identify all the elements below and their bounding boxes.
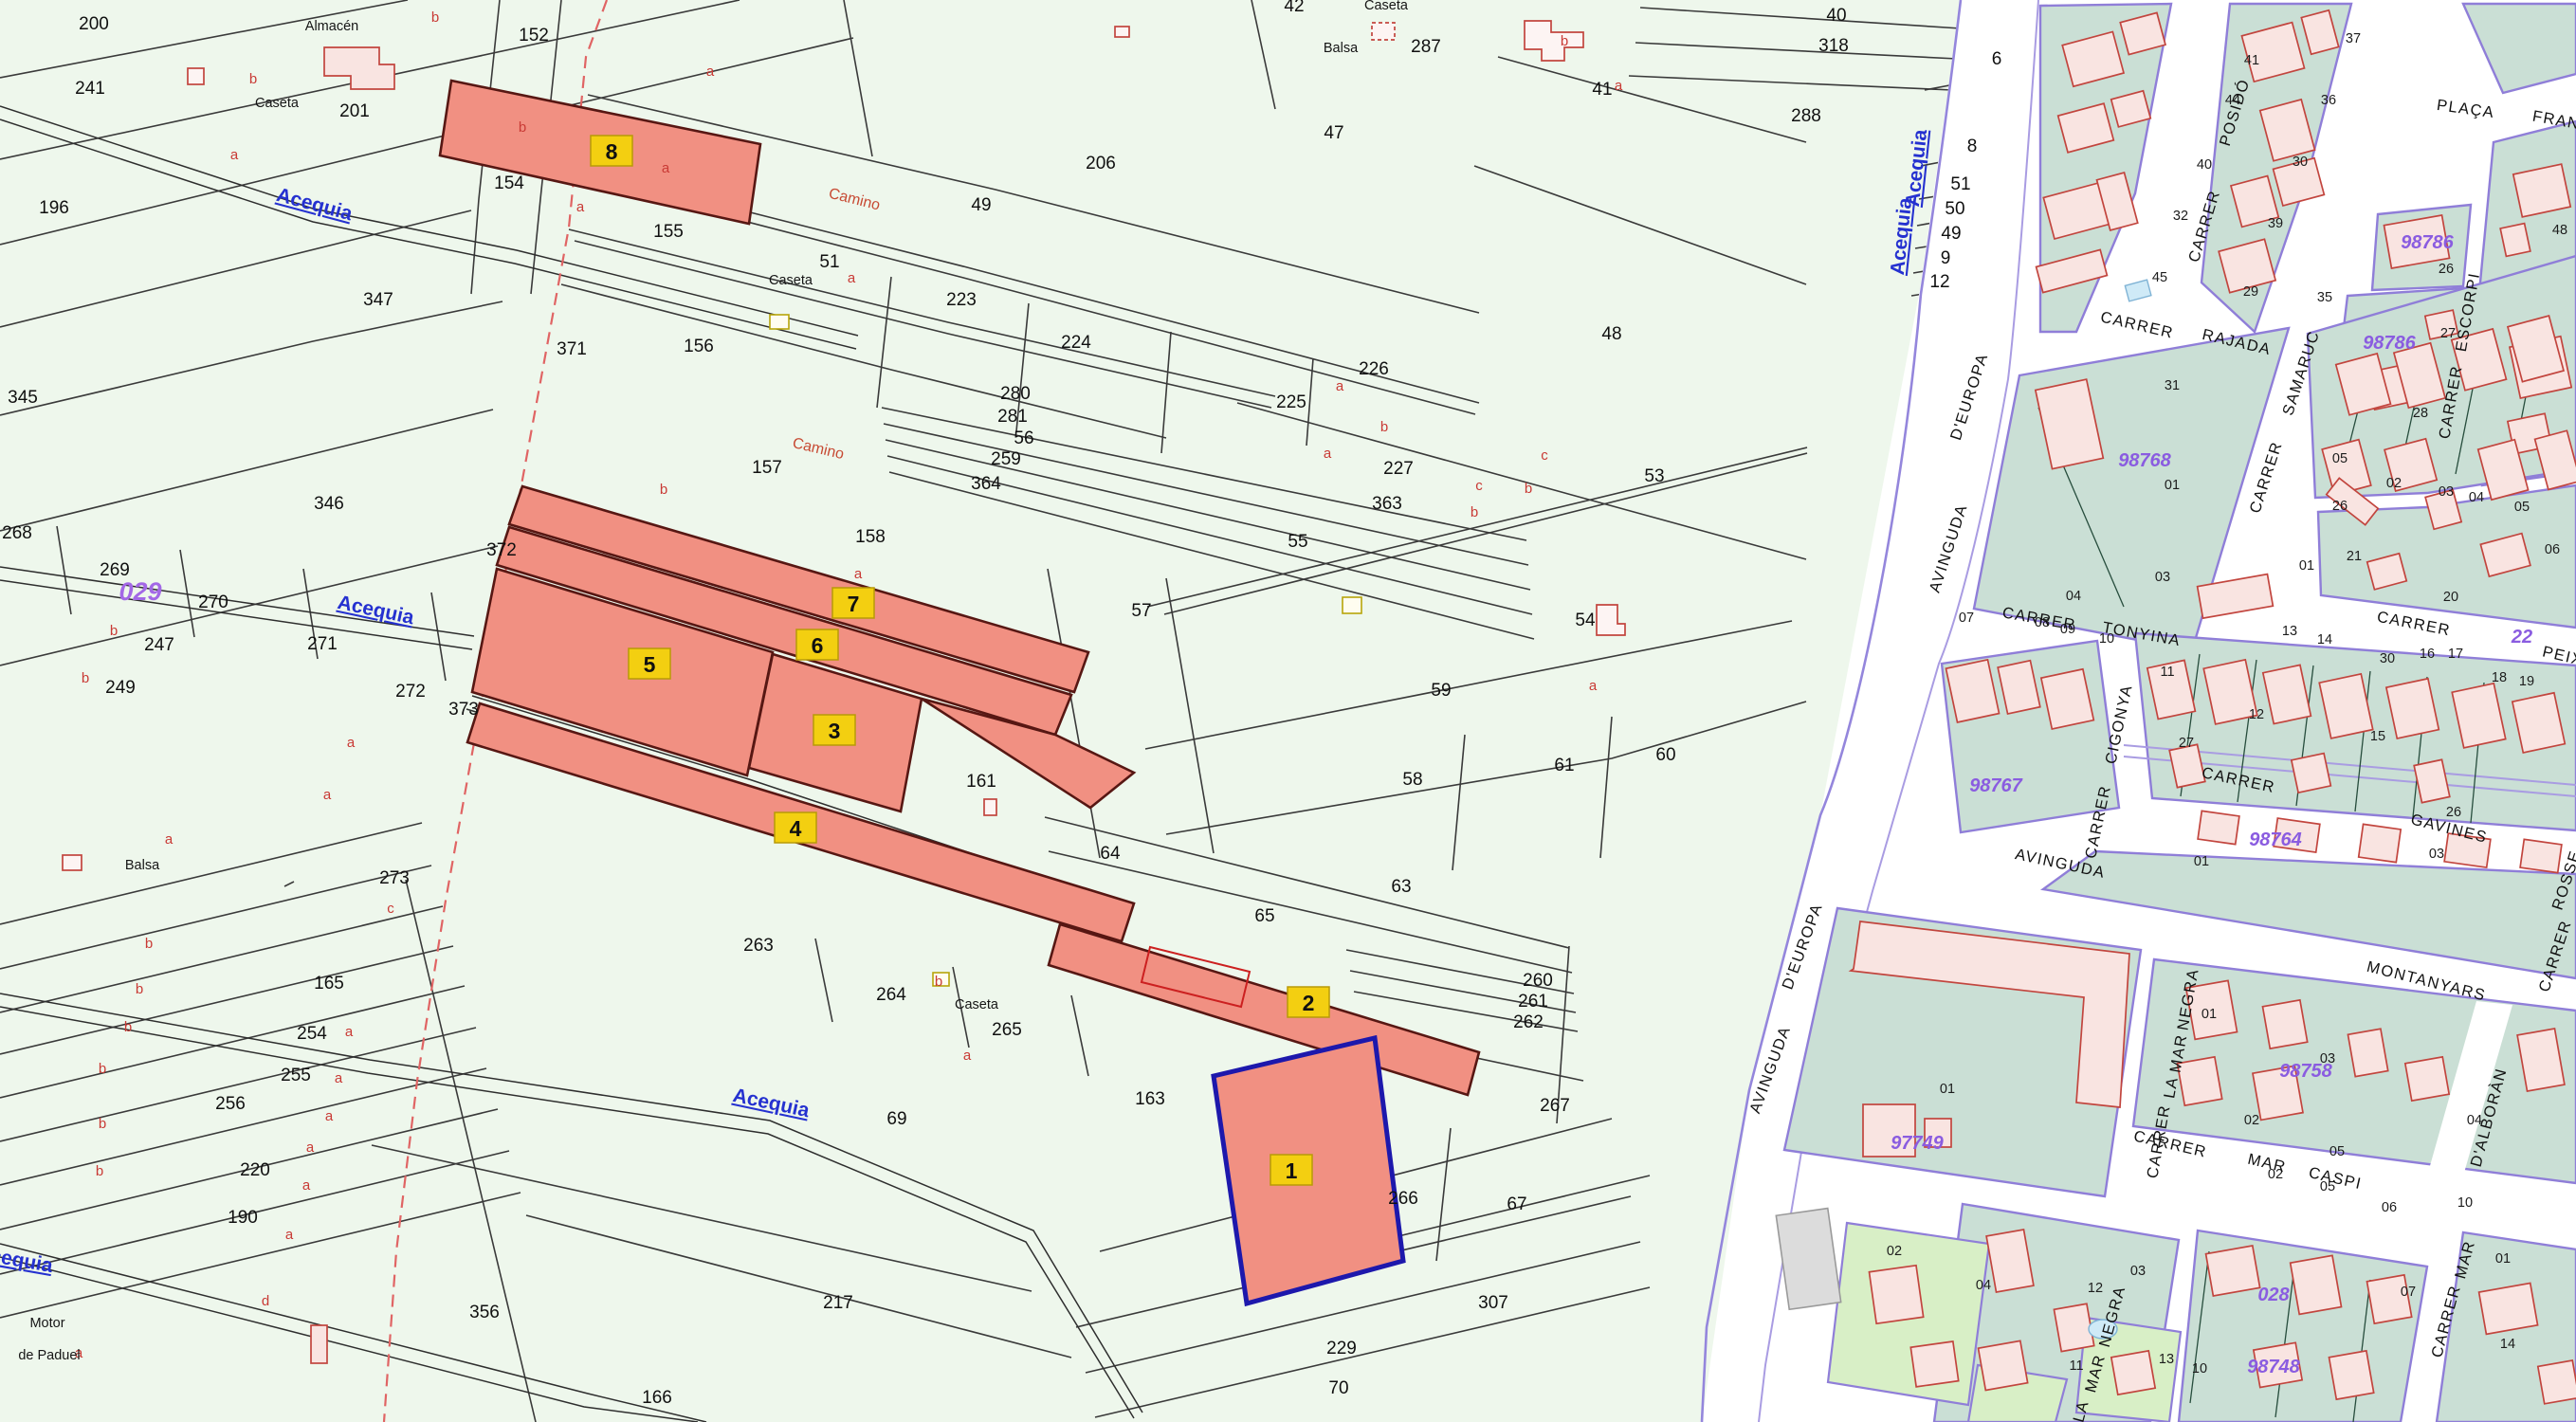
map-label: 02 [1887,1244,1902,1259]
map-label: 229 [1326,1339,1357,1358]
map-label: 356 [469,1303,500,1322]
map-label: 03 [2130,1264,2146,1279]
map-label: 10 [2457,1195,2473,1211]
map-label: b [1471,504,1478,520]
map-label: 6 [1992,49,2002,69]
map-label: 163 [1135,1089,1165,1109]
map-label: 318 [1818,36,1849,56]
map-label: 261 [1518,992,1548,1012]
map-label: 03 [2439,484,2454,500]
map-label: 373 [448,700,479,720]
map-label: 59 [1431,681,1451,701]
map-label: 14 [2500,1337,2515,1352]
map-label: 200 [79,14,109,34]
map-label: 98786 [2363,333,2416,354]
map-label: a [662,160,670,176]
map-label: 9 [1941,248,1951,268]
map-label: a [302,1177,311,1194]
map-label: 61 [1554,756,1574,775]
map-label: 31 [2165,378,2180,393]
map-label: 48 [1601,324,1621,344]
map-label: 263 [743,936,774,956]
map-label: 345 [8,388,38,408]
map-label: 372 [486,540,517,560]
map-label: b [249,71,257,87]
map-label: d [262,1293,269,1309]
map-label: 36 [2321,93,2336,108]
map-label: 07 [2401,1285,2416,1300]
map-label: b [431,9,439,26]
map-label: 259 [991,449,1021,469]
map-label: a [848,270,856,286]
map-label: 18 [2492,670,2507,685]
map-label: 30 [2293,155,2308,170]
map-label: 49 [1941,224,1961,244]
map-label: b [1561,33,1568,49]
map-label: 226 [1359,359,1389,379]
map-label: 225 [1276,392,1306,412]
map-label: 223 [946,290,977,310]
map-label: 158 [855,527,886,547]
map-label: b [1525,481,1532,497]
svg-text:2: 2 [1303,991,1315,1015]
map-label: a [306,1139,315,1156]
map-label: a [963,1048,972,1064]
svg-text:8: 8 [606,139,618,164]
map-label: 98764 [2249,829,2302,850]
highlight-label-7[interactable]: 7 [832,588,874,618]
map-label: 17 [2448,647,2463,662]
map-label: 41 [1592,80,1612,100]
map-label: b [935,974,942,990]
map-label: c [387,901,394,917]
map-label: 227 [1383,459,1414,479]
map-label: 12 [2249,707,2264,722]
svg-text:1: 1 [1286,1158,1298,1183]
map-label: 54 [1575,611,1596,630]
map-label: Balsa [1324,41,1359,56]
map-label: 21 [2347,549,2362,564]
map-label: 48 [2552,223,2567,238]
map-label: 50 [1945,199,1964,219]
map-label: 01 [2299,558,2314,574]
map-label: 270 [198,592,228,612]
map-label: 37 [2346,31,2361,46]
map-label: 307 [1478,1293,1508,1313]
map-label: a [576,199,585,215]
map-label: a [165,831,174,848]
map-label: 8 [1967,137,1978,156]
map-label: 01 [2165,478,2180,493]
map-label: 03 [2429,847,2444,862]
map-label: 56 [1014,428,1033,448]
map-label: 60 [1655,745,1675,765]
svg-text:4: 4 [790,816,802,841]
map-label: 12 [1929,272,1949,292]
map-label: 63 [1391,877,1411,897]
cadastral-map-canvas[interactable]: 2002412011521541551963473711563453463722… [0,0,2576,1422]
map-label: 288 [1791,106,1821,126]
map-label: 190 [228,1208,258,1228]
highlight-label-6[interactable]: 6 [796,629,838,660]
map-label: 47 [1324,123,1343,143]
map-label: 53 [1644,466,1664,486]
map-label: 346 [314,494,344,514]
map-label: 265 [992,1020,1022,1040]
map-label: 41 [2244,53,2259,68]
highlight-label-3[interactable]: 3 [813,715,855,745]
map-label: c [1541,447,1548,464]
map-label: b [1380,419,1388,435]
map-label: 26 [2439,262,2454,277]
map-label: 15 [2370,729,2385,744]
map-label: Caseta [769,273,813,288]
map-label: b [124,1019,132,1035]
map-label: 10 [2192,1361,2207,1376]
highlight-label-5[interactable]: 5 [629,648,670,679]
map-label: 64 [1100,844,1121,864]
map-label: b [136,981,143,997]
map-label: 40 [2197,157,2212,173]
highlight-label-1[interactable]: 1 [1270,1155,1312,1185]
map-label: 67 [1507,1194,1526,1214]
map-label: 247 [144,635,174,655]
map-label: 281 [997,407,1028,427]
map-label: 69 [886,1109,906,1129]
map-label: 26 [2332,499,2348,514]
map-label: 45 [2152,270,2167,285]
map-label: 70 [1328,1378,1348,1398]
map-label: 273 [379,868,410,888]
map-label: 206 [1086,154,1116,173]
svg-text:3: 3 [829,719,841,743]
map-label: 57 [1131,601,1151,621]
map-label: 13 [2159,1352,2174,1367]
svg-text:6: 6 [812,633,824,658]
map-label: a [1589,678,1598,694]
map-label: 157 [752,458,782,478]
map-label: 29 [2243,284,2258,300]
map-label: 39 [2268,216,2283,231]
map-label: 05 [2329,1144,2345,1159]
map-label: a [1615,78,1623,94]
map-label: 16 [2420,647,2435,662]
map-label: a [345,1024,354,1040]
map-label: b [99,1061,106,1077]
map-label: 01 [2201,1007,2217,1022]
map-label: 19 [2519,674,2534,689]
map-label: de Paduel [18,1348,80,1363]
map-label: 280 [1000,384,1031,404]
map-label: a [1324,446,1332,462]
svg-text:7: 7 [848,592,860,616]
map-label: 028 [2257,1285,2290,1305]
map-label: 161 [966,772,996,792]
map-label: 267 [1540,1096,1570,1116]
map-label: 241 [75,79,105,99]
map-label: 02 [2386,476,2402,491]
map-label: 07 [1959,611,1974,626]
map-label: 363 [1372,494,1402,514]
map-label: 98758 [2279,1061,2332,1082]
map-label: a [1336,378,1344,394]
map-label: 224 [1061,333,1091,353]
map-label: 262 [1513,1012,1544,1032]
map-label: 98767 [1969,775,2022,796]
map-label: 98748 [2247,1357,2300,1377]
map-label: 28 [2413,406,2428,421]
map-label: 287 [1411,37,1441,57]
map-label: b [99,1116,106,1132]
map-label: Almacén [305,19,358,34]
map-label: 249 [105,678,136,698]
map-label: 029 [119,577,161,606]
map-label: 40 [1826,6,1846,26]
map-label: 364 [971,474,1001,494]
map-label: 27 [2440,326,2456,341]
map-label: c [1475,478,1483,494]
map-label: 256 [215,1094,246,1114]
map-label: 04 [1976,1278,1991,1293]
map-label: 51 [1950,174,1970,194]
map-label: Caseta [1364,0,1409,13]
map-label: 01 [2194,854,2209,869]
map-label: Caseta [255,96,300,111]
map-label: 04 [2469,490,2484,505]
map-label: 271 [307,634,338,654]
map-label: a [325,1108,334,1124]
map-label: 254 [297,1024,327,1044]
map-label: 06 [2545,542,2560,557]
highlight-label-4[interactable]: 4 [775,812,816,843]
map-label: 32 [2173,209,2188,224]
map-label: 255 [281,1066,311,1085]
map-label: b [82,670,89,686]
map-label: 217 [823,1293,853,1313]
map-label: 13 [2282,624,2297,639]
map-label: 155 [653,222,684,242]
map-label: 266 [1388,1189,1418,1209]
map-label: 05 [2332,451,2348,466]
map-label: 152 [519,26,549,46]
map-label: a [230,147,239,163]
map-label: a [323,787,332,803]
map-label: 02 [2244,1113,2259,1128]
map-label: 156 [684,337,714,356]
map-label: a [347,735,356,751]
map-label: b [519,119,526,136]
map-label: 03 [2155,570,2170,585]
map-label: 05 [2514,500,2530,515]
map-label: 154 [494,173,524,193]
map-label: a [335,1070,343,1086]
map-label: 165 [314,974,344,994]
map-label: 166 [642,1388,672,1408]
map-label: b [145,936,153,952]
map-label: 58 [1402,770,1422,790]
map-label: 12 [2088,1281,2103,1296]
map-label: b [110,623,118,639]
map-label: 65 [1254,906,1274,926]
map-label: Balsa [125,858,160,873]
map-label: 01 [1940,1082,1955,1097]
map-label: 26 [2446,805,2461,820]
map-label: 98768 [2118,450,2171,471]
map-label: 264 [876,985,906,1005]
map-label: 347 [363,290,393,310]
map-label: 201 [339,101,370,121]
map-label: 30 [2380,651,2395,666]
map-label: 35 [2317,290,2332,305]
map-label: 220 [240,1160,270,1180]
map-label: 11 [2069,1358,2083,1374]
map-label: a [285,1227,294,1243]
map-label: 06 [2382,1200,2397,1215]
svg-text:5: 5 [644,652,656,677]
highlight-label-8[interactable]: 8 [591,136,632,166]
map-label: 20 [2443,590,2458,605]
map-label: 42 [1284,0,1304,16]
map-label: b [96,1163,103,1179]
map-label: 22 [2511,627,2532,647]
map-label: Caseta [955,997,999,1012]
map-label: b [660,482,667,498]
map-label: 51 [819,252,839,272]
map-label: 49 [971,195,991,215]
cadastral-map-viewport[interactable]: 2002412011521541551963473711563453463722… [0,0,2576,1422]
map-label: a [706,64,715,80]
map-label: 01 [2495,1251,2511,1267]
map-label: 14 [2317,632,2332,647]
map-label: 04 [2066,589,2081,604]
highlight-label-2[interactable]: 2 [1288,987,1329,1017]
map-label: 55 [1288,532,1307,552]
map-label: 27 [2179,736,2194,751]
map-label: 260 [1523,971,1553,991]
map-label: Motor [29,1316,64,1331]
map-label: 97749 [1891,1133,1944,1154]
map-label: 98786 [2401,232,2454,253]
map-label: a [854,566,863,582]
map-label: 272 [395,682,426,702]
map-label: 268 [2,523,32,543]
map-label: 371 [557,339,587,359]
map-label: 11 [2160,665,2174,680]
map-label: 196 [39,198,69,218]
